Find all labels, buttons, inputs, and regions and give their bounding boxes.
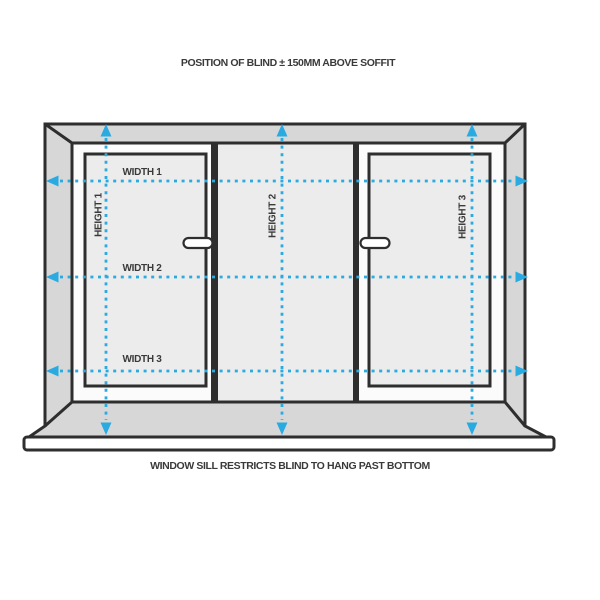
height-1-label: HEIGHT 1: [94, 192, 105, 236]
window-sill: [24, 437, 554, 450]
width-2-label: WIDTH 2: [122, 263, 162, 274]
right-sash-handle: [361, 238, 390, 248]
top-note-text: POSITION OF BLIND ± 150MM ABOVE SOFFIT: [181, 57, 396, 69]
window-measurement-diagram: POSITION OF BLIND ± 150MM ABOVE SOFFIT: [0, 0, 600, 600]
blind-measurement-diagram-page: POSITION OF BLIND ± 150MM ABOVE SOFFIT: [0, 0, 600, 600]
width-1-label: WIDTH 1: [122, 167, 162, 178]
left-sash-handle: [184, 238, 213, 248]
height-3-label: HEIGHT 3: [458, 194, 469, 238]
height-2-label: HEIGHT 2: [268, 193, 279, 237]
middle-glass-panel: [212, 145, 358, 401]
width-3-label: WIDTH 3: [122, 354, 162, 365]
bottom-note-text: WINDOW SILL RESTRICTS BLIND TO HANG PAST…: [150, 460, 430, 472]
